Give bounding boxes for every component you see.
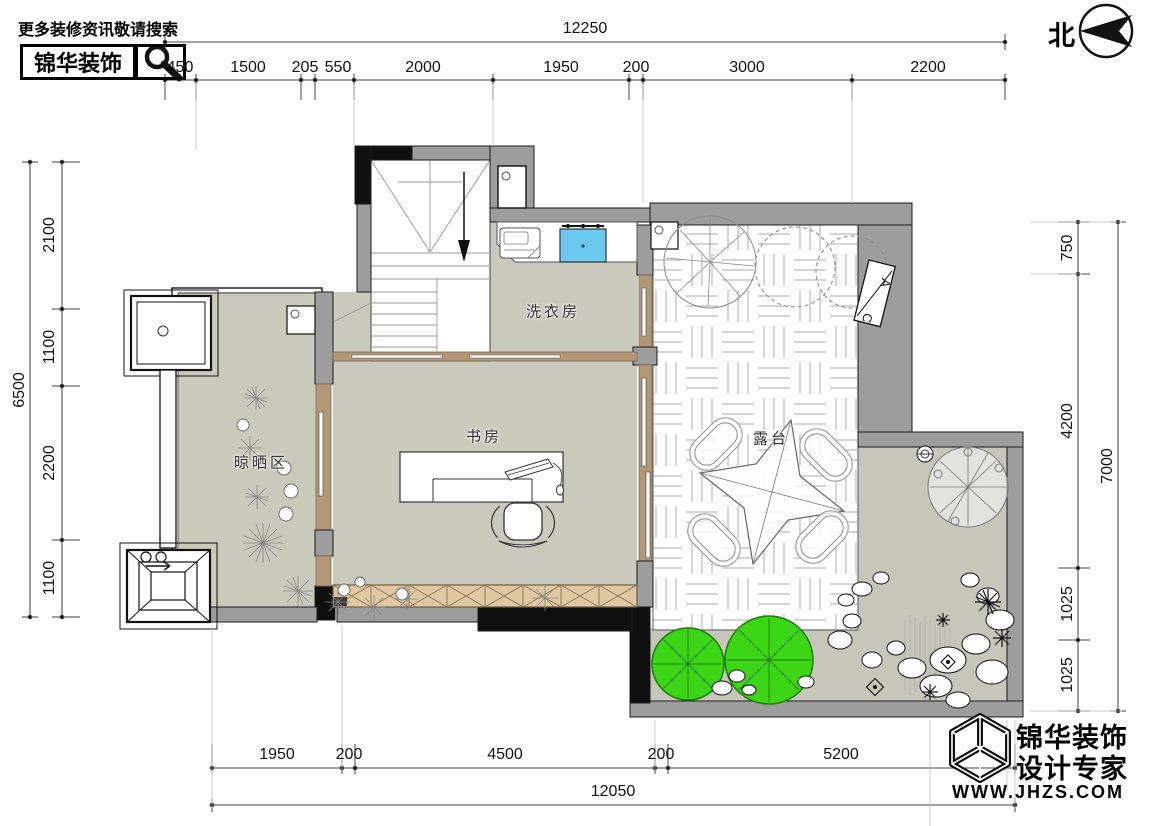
dim-bottom-seg: 200 xyxy=(648,746,675,764)
laundry-sink xyxy=(560,224,606,262)
dim-left-total: 6500 xyxy=(11,372,29,408)
black-wall xyxy=(478,605,632,631)
study-desk xyxy=(400,452,564,502)
header-tagline: 更多装修资讯敬请搜索 xyxy=(18,16,178,40)
footer-website: WWW.JHZS.COM xyxy=(952,782,1124,803)
dim-right-total: 7000 xyxy=(1099,448,1117,484)
dim-bottom-seg: 4500 xyxy=(487,746,523,764)
dim-top-seg: 3000 xyxy=(729,59,765,77)
room-label-study: 书房 xyxy=(466,426,502,447)
washing-machine xyxy=(500,228,540,258)
dim-left-seg: 1100 xyxy=(41,330,59,364)
dim-top-seg: 2200 xyxy=(910,59,946,77)
dim-bottom-seg: 1950 xyxy=(259,746,295,764)
dim-right-seg: 4200 xyxy=(1059,403,1077,439)
dim-right-seg: 1025 xyxy=(1059,586,1077,622)
dim-left-seg: 2100 xyxy=(41,217,59,253)
footer-cube-logo xyxy=(952,716,1008,780)
dim-left-seg: 1100 xyxy=(41,561,59,595)
terrace-corner-box xyxy=(651,222,678,249)
north-compass xyxy=(1080,5,1132,57)
floor-plan-page: A C xyxy=(0,0,1158,826)
skylight-lower xyxy=(120,543,217,629)
dim-bottom-seg: 5200 xyxy=(823,746,859,764)
floor-plan-drawing: A C xyxy=(0,0,1158,826)
header-brand-logo: 锦华装饰 xyxy=(20,44,136,80)
dim-right-seg: 750 xyxy=(1059,235,1077,262)
mouse xyxy=(557,485,564,495)
footer-subtitle: 设计专家 xyxy=(1016,747,1128,786)
vent-shaft xyxy=(498,166,526,208)
black-wall xyxy=(315,586,335,620)
dim-top-seg: 550 xyxy=(325,59,352,77)
dim-top-total: 12250 xyxy=(563,20,608,38)
dim-top-seg: 205 xyxy=(292,59,319,77)
skylight-upper xyxy=(124,290,218,376)
dim-top-seg: 1950 xyxy=(543,59,579,77)
north-label: 北 xyxy=(1048,14,1075,53)
black-wall xyxy=(355,146,371,204)
dim-bottom-total: 12050 xyxy=(591,783,636,801)
dim-top-seg: 200 xyxy=(623,59,650,77)
drain-symbol xyxy=(917,446,933,462)
room-label-terrace: 露台 xyxy=(753,428,789,449)
dim-right-seg: 1025 xyxy=(1059,657,1077,693)
dim-bottom-seg: 200 xyxy=(336,746,363,764)
garden-palm xyxy=(928,447,1008,527)
room-label-drying: 晾晒区 xyxy=(234,452,288,473)
dim-left-seg: 2200 xyxy=(41,445,59,481)
skylight-flue xyxy=(160,370,176,548)
study-cabinet xyxy=(333,585,637,607)
dim-top-seg: 1500 xyxy=(230,59,266,77)
dim-top-seg: 450 xyxy=(167,59,194,77)
dim-top-seg: 2000 xyxy=(405,59,441,77)
laundry-counter xyxy=(497,222,637,262)
room-label-laundry: 洗衣房 xyxy=(526,301,580,322)
black-wall xyxy=(630,605,650,703)
